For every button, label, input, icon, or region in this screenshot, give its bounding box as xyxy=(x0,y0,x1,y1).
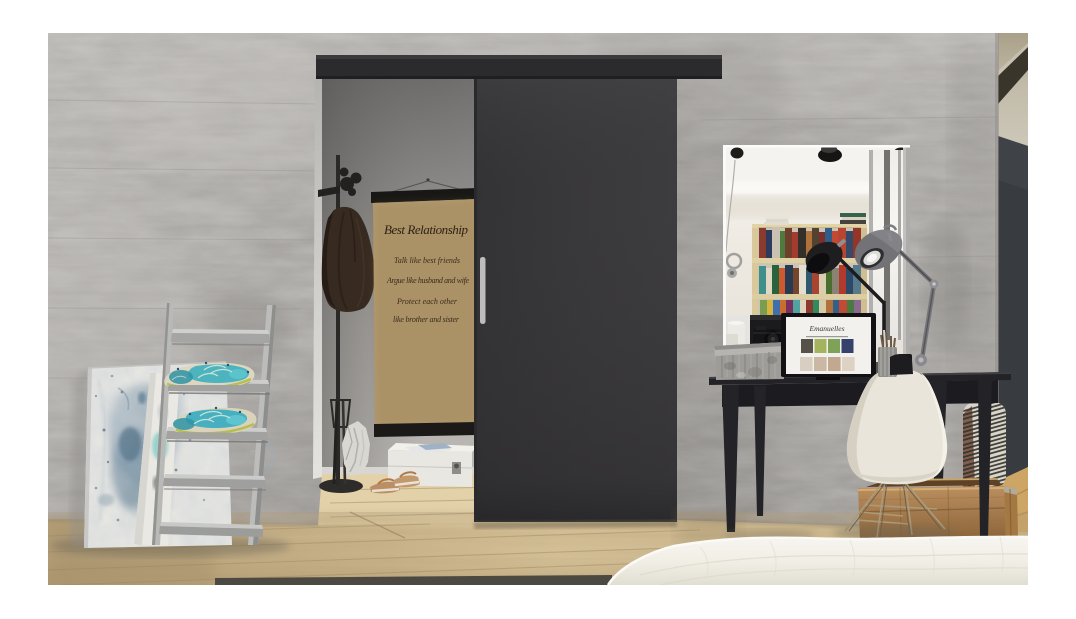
svg-text:Best Relationship: Best Relationship xyxy=(384,222,469,237)
svg-text:like brother and sister: like brother and sister xyxy=(393,315,460,324)
svg-text:Emanuelles: Emanuelles xyxy=(809,324,845,333)
svg-text:Talk like best friends: Talk like best friends xyxy=(394,256,460,265)
svg-text:Protect each other: Protect each other xyxy=(396,297,458,306)
svg-text:Argue like husband and wife: Argue like husband and wife xyxy=(386,276,469,285)
